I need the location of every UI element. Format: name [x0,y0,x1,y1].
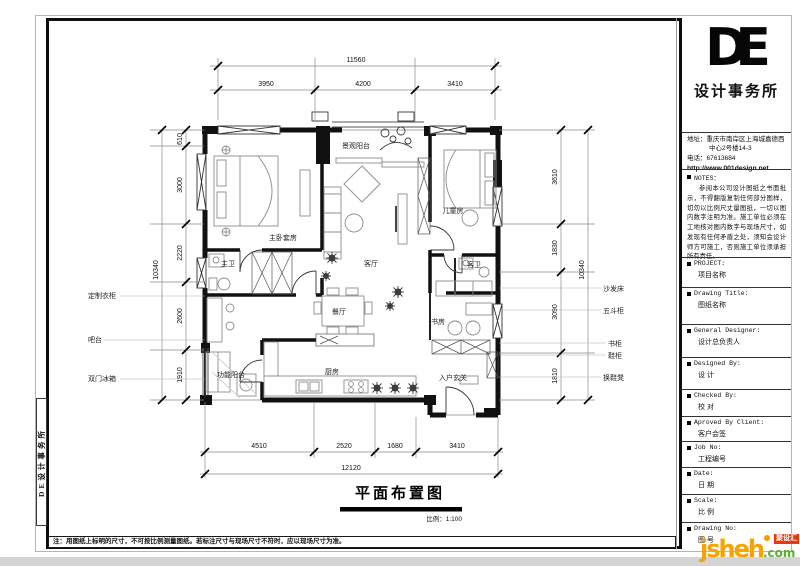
watermark-badge: 聚设汇 [774,534,799,544]
field-approved-by-client: Aproved By Client: 客户会签 [682,416,791,441]
field-checked-by: Checked By: 校 对 [682,389,791,416]
field-label: Designed By: [694,360,741,367]
field-value: 图纸名称 [687,300,786,310]
room-label-study: 书房 [431,317,445,326]
field-value: 项目名称 [687,270,786,280]
watermark-name: jsheh [700,535,763,563]
furniture [206,146,496,398]
field-label: Aproved By Client: [694,419,764,426]
dim-right-overall: 10340 [579,260,586,280]
field-bullet-icon [687,499,691,503]
watermark-dot-icon [764,535,770,541]
annotation-bar: 吧台 [88,335,102,344]
notes-body: 参阅本公司设计图纸之书面批示，不得翻版复制任何部分图样，切勿以比例尺丈量图纸，一… [687,184,786,262]
field-bullet-icon [687,292,691,296]
room-label-utility-balcony: 功能阳台 [217,370,245,379]
field-value: 比 例 [687,507,786,517]
wall-pillars [200,126,502,417]
address-line-2: 中心2号楼14-3 [687,144,786,153]
drawing-title-group: 平面布置图 比例：1:100 [340,484,462,523]
field-label: Drawing No: [694,525,737,532]
annotation-labels: 定制衣柜 吧台 双门冰箱 沙发床 五斗柜 书柜 鞋柜 换鞋凳 [88,284,624,383]
field-bullet-icon [687,527,691,531]
title-block-notes: NOTES： 参阅本公司设计图纸之书面批示，不得翻版复制任何部分图样，切勿以比例… [682,169,791,257]
field-bullet-icon [687,175,691,179]
field-drawing-title: Drawing Title: 图纸名称 [682,287,791,324]
dim-top-3: 3410 [447,81,463,88]
room-label-entry: 入户玄关 [439,373,467,382]
annotation-wardrobe: 定制衣柜 [88,291,116,300]
field-label: Date: [694,470,714,477]
field-bullet-icon [687,362,691,366]
notes-heading: NOTES： [694,172,720,182]
dim-left-overall: 10340 [153,260,160,280]
title-block: DE 设计事务所 地址：重庆市南岸区上海城嘉德西 中心2号楼14-3 电话：67… [679,18,791,549]
phone-number: 电话：67613684 [687,154,786,163]
drawing-title: 平面布置图 [355,484,445,502]
dim-right-1: 3610 [552,169,559,185]
room-label-master-bedroom: 主卧套房 [269,233,297,242]
field-label: Scale: [694,497,717,504]
field-bullet-icon [687,472,691,476]
field-general-designer: General Designer: 设计总负责人 [682,324,791,357]
field-job-no: Job No: 工程编号 [682,441,791,467]
field-bullet-icon [687,446,691,450]
dim-right-2: 1830 [552,240,559,256]
dim-top-1: 3950 [258,81,274,88]
field-bullet-icon [687,262,691,266]
field-label: General Designer: [694,327,760,334]
dim-right-3: 3090 [552,304,559,320]
side-strip-firm-box: DE设计事务所 [36,398,47,526]
watermark-logo: jsheh.com 聚设汇 [700,533,800,566]
side-strip-text: DE设计事务所 [36,428,47,497]
field-value: 工程编号 [687,454,786,464]
field-label: PROJECT: [694,260,725,267]
title-block-address: 地址：重庆市南岸区上海城嘉德西 中心2号楼14-3 电话：67613684 ht… [682,132,791,169]
field-bullet-icon [687,329,691,333]
address-line-1: 地址：重庆市南岸区上海城嘉德西 [687,135,786,144]
room-label-kids-room: 儿童房 [443,206,464,215]
annotation-bookcase: 书柜 [608,339,622,348]
watermark-tld: .com [763,546,795,560]
annotation-fridge: 双门冰箱 [88,374,116,383]
drawing-sheet: 11560 3950 4200 3410 10340 610 3000 2220… [0,0,800,566]
room-label-kitchen: 厨房 [325,367,339,376]
dim-bottom-overall: 12120 [341,465,361,472]
field-date: Date: 日 期 [682,467,791,494]
field-value: 日 期 [687,480,786,490]
title-underline [340,507,462,512]
dim-bottom-1: 4510 [251,443,267,450]
annotation-shoe-bench: 换鞋凳 [603,373,624,382]
field-project: PROJECT: 项目名称 [682,257,791,287]
room-label-guest-bath: 客卫 [467,260,481,269]
room-label-master-bath: 主卫 [221,259,235,268]
dim-top-overall: 11560 [347,57,366,64]
room-label-balcony: 景观阳台 [342,141,370,150]
dim-left-2: 3000 [177,177,184,193]
balcony-railing [203,122,424,396]
dim-top-2: 4200 [355,81,371,88]
field-value: 设计总负责人 [687,337,786,347]
annotation-sofa-bed: 沙发床 [603,284,624,293]
field-scale: Scale: 比 例 [682,494,791,522]
dimension-lines [150,58,595,478]
title-block-logo: DE 设计事务所 [682,18,791,132]
annotation-chest: 五斗柜 [603,306,624,315]
bottom-band [0,557,800,566]
drawing-scale: 比例：1:100 [426,514,462,523]
room-label-living-room: 客厅 [364,259,378,268]
built-in-cabinets [252,158,498,378]
field-bullet-icon [687,421,691,425]
company-logo: DE [687,20,776,76]
annotation-shoe-cabinet: 鞋柜 [608,351,622,360]
dim-bottom-2: 2520 [336,443,352,450]
dim-left-1: 610 [177,133,184,145]
field-value: 校 对 [687,402,786,412]
dim-left-3: 2220 [177,245,184,261]
sheet-note: 注：用图纸上标明的尺寸，不可按比例测量图纸。若标注尺寸与现场尺寸不符时，应以现场… [48,536,676,548]
company-name: 设计事务所 [687,80,786,101]
dim-right-4: 1810 [552,368,559,384]
field-label: Checked By: [694,392,737,399]
annotation-leaders [103,288,606,379]
field-label: Job No: [694,444,721,451]
room-label-dining: 餐厅 [332,307,346,316]
field-label: Drawing Title: [694,290,749,297]
dim-left-4: 2600 [177,308,184,324]
dim-bottom-3: 1680 [387,443,403,450]
dim-bottom-4: 3410 [449,443,465,450]
field-value: 设 计 [687,370,786,380]
field-value: 客户会签 [687,429,786,439]
field-bullet-icon [687,394,691,398]
dim-left-5: 1910 [177,367,184,383]
field-designed-by: Designed By: 设 计 [682,357,791,389]
